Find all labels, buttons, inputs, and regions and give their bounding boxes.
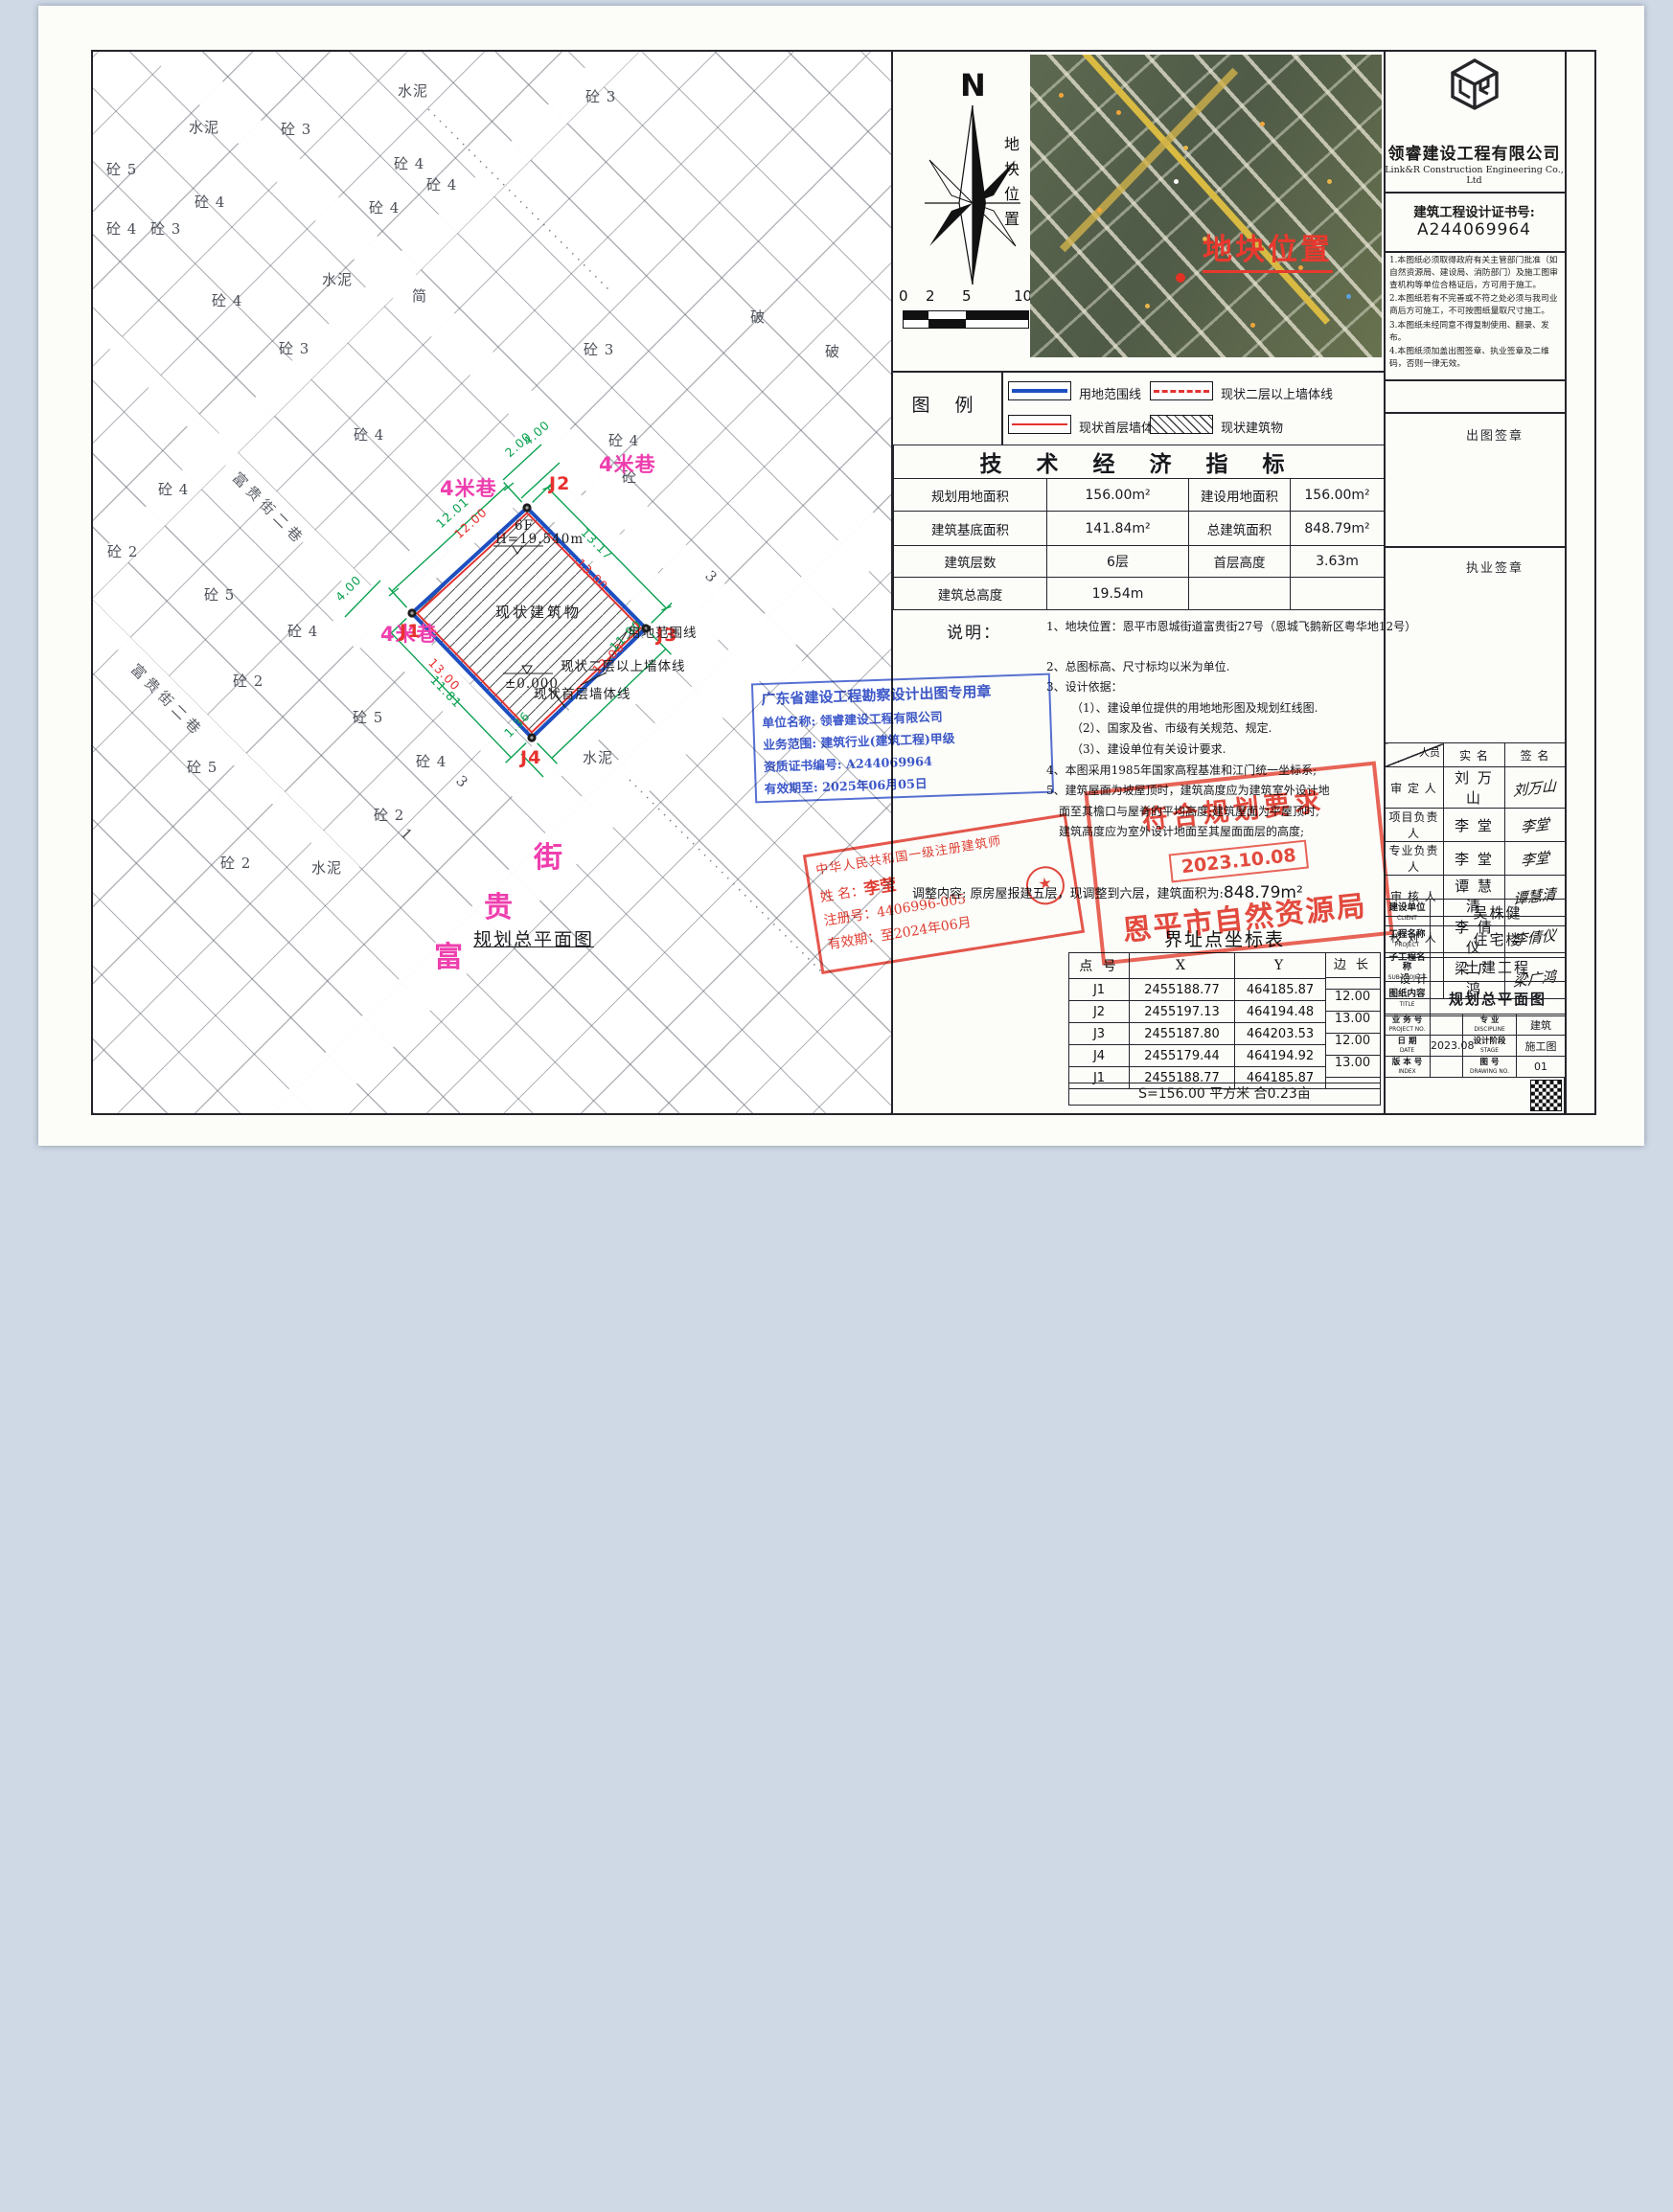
map-label: 砼 3: [584, 339, 614, 359]
map-label: J2: [549, 473, 570, 494]
divider: [1384, 412, 1565, 414]
map-label: 3: [701, 567, 721, 586]
map-label: 富贵街二巷: [228, 467, 310, 550]
personnel-signature: 李堂: [1505, 842, 1566, 876]
map-label: 水泥: [398, 80, 428, 101]
coord-cell: J2: [1069, 1001, 1130, 1023]
legend-label: 现状二层以上墙体线: [1221, 384, 1333, 402]
scale-number: 2: [926, 287, 935, 305]
divider: [1384, 192, 1565, 194]
coord-cell: 464194.48: [1235, 1001, 1326, 1023]
info-label-en: TITLE: [1387, 1000, 1427, 1007]
legend-title: 图 例: [893, 391, 1001, 417]
cert-number-value: A244069964: [1384, 220, 1565, 239]
natural-resources-bureau-stamp: 符合规划要求 2023.10.08 恩平市自然资源局: [1084, 762, 1393, 966]
tech-label: 首层高度: [1189, 546, 1291, 578]
disclaimer-line: 4.本图纸须加盖出图签章、执业签章及二维码，否则一律无效。: [1389, 346, 1560, 371]
divider: [1384, 251, 1565, 253]
personnel-name: 刘 万 山: [1444, 767, 1505, 809]
map-label: 砼 5: [106, 159, 137, 179]
coord-cell: J4: [1069, 1045, 1130, 1067]
coord-cell: 2455197.13: [1130, 1001, 1235, 1023]
map-label: 水泥: [322, 269, 353, 289]
note-line: （1）、建设单位提供的用地地形图及规划红线图.: [1046, 698, 1386, 719]
legend-swatch-existing-building: [1150, 415, 1213, 434]
note-line: 1、地块位置：恩平市恩城街道富贵街27号（恩城飞鹅新区粤华地12号）: [1046, 617, 1386, 638]
personnel-role: 项目负责人: [1385, 809, 1444, 842]
map-label: 砼 4: [369, 197, 400, 217]
tech-value: 141.84m²: [1047, 512, 1189, 546]
info-label-zh: 图纸内容: [1385, 990, 1430, 999]
map-label: 4米巷: [599, 449, 656, 478]
satellite-poi-dots: [1059, 93, 1064, 98]
note-line: （2）、国家及省、市级有关规范、规定.: [1046, 718, 1386, 740]
plot-location-callout: 地块位置: [1203, 225, 1333, 273]
stamp-field-label: 注册号：: [823, 905, 879, 929]
grid-label-en: STAGE: [1466, 1047, 1514, 1054]
map-label: 现状建筑物: [495, 602, 582, 622]
divider: [1384, 379, 1565, 381]
map-labels-layer: 水泥砼 3水泥砼 5砼 4砼 4砼 4砼 3砼 4砼 4水泥简砼 3砼 4破破砼…: [93, 52, 893, 1115]
archive-qr-code: [1530, 1080, 1562, 1111]
tech-label: 总建筑面积: [1189, 512, 1291, 546]
stamp-agency-name: 恩平市自然资源局: [1120, 881, 1368, 949]
disclaimer-line: 2.本图纸若有不完善或不符之处必须与我司业商后方可施工，不可按图纸量取尺寸施工。: [1389, 293, 1560, 318]
grid-label-zh: 图 号: [1463, 1059, 1516, 1067]
area-summary: S=156.00 平方米 合0.23亩: [1068, 1083, 1381, 1106]
sheet-title-value: 规划总平面图: [1431, 981, 1566, 1015]
coord-cell: 464203.53: [1235, 1023, 1326, 1045]
grid-label-cell: 业 务 号PROJECT NO.: [1385, 1015, 1431, 1036]
info-label-zh: 建设单位: [1385, 903, 1430, 913]
map-label: 4.00: [332, 572, 364, 604]
info-label-zh: 工程名称: [1385, 930, 1430, 940]
tech-value: 19.54m: [1047, 578, 1189, 610]
map-label: 1: [397, 825, 416, 844]
map-label: 4.00: [520, 418, 553, 448]
tech-label: [1189, 578, 1291, 610]
map-label: 水泥: [189, 117, 219, 137]
map-label: 1.36: [501, 708, 533, 740]
cert-number-label: 建筑工程设计证书号:: [1384, 201, 1565, 220]
edge-spacer: [1325, 978, 1380, 990]
info-label-zh: 子工程名称: [1385, 953, 1430, 973]
map-label: 砼 5: [204, 584, 235, 604]
map-label: 砼 4: [608, 430, 639, 450]
map-label: 砼 4: [195, 192, 225, 212]
tech-label: 建筑基底面积: [894, 512, 1047, 546]
personnel-header: 实 名: [1444, 743, 1505, 767]
coord-cell: J1: [1069, 979, 1130, 1001]
plot-location-strip: 地块位置: [998, 136, 1021, 236]
coordinate-table: 点 号 X Y J12455188.77464185.87 J22455197.…: [1068, 952, 1326, 1089]
note-line: （3）、建设单位有关设计要求.: [1046, 740, 1386, 761]
disclaimer-line: 3.本图纸未经同意不得复制使用、翻录、发布。: [1389, 320, 1560, 345]
map-label: 砼 3: [281, 119, 311, 139]
corner-label: 人员: [1419, 744, 1440, 760]
grid-label-en: DISCIPLINE: [1466, 1026, 1514, 1033]
info-label-cell: 建设单位CLIENT: [1385, 900, 1431, 926]
tech-table-title: 技 术 经 济 指 标: [894, 445, 1385, 479]
legend-swatch-land-boundary: [1008, 381, 1071, 400]
scale-number: 0: [899, 287, 908, 305]
signature: 刘万山: [1513, 775, 1556, 801]
grid-label-zh: 版 本 号: [1385, 1059, 1430, 1067]
company-name: 领睿建设工程有限公司: [1384, 140, 1565, 164]
map-label: 水泥: [311, 857, 342, 878]
grid-label-cell: 专 业DISCIPLINE: [1463, 1015, 1517, 1036]
note-line: 2、总图标高、尺寸标均以米为单位.: [1046, 657, 1386, 678]
info-label-en: CLIENT: [1387, 914, 1427, 921]
personnel-name: 李 堂: [1444, 809, 1505, 842]
info-label-cell: 工程名称PROJECT: [1385, 926, 1431, 953]
note-line: 3、设计依据：: [1046, 677, 1386, 698]
tech-value: 6层: [1047, 546, 1189, 578]
disclaimer-notes: 1.本图纸必须取得政府有关主管部门批准（如自然资源局、建设局、消防部门）及施工图…: [1389, 255, 1560, 373]
project-name: 住宅楼: [1431, 926, 1566, 953]
map-label: 砼 3: [279, 338, 309, 358]
grid-label-cell: 设计阶段STAGE: [1463, 1036, 1517, 1057]
satellite-image: 地块位置: [1030, 55, 1382, 357]
edge-length: 13.00: [1325, 1012, 1380, 1034]
map-label: 富: [434, 933, 464, 975]
map-label: 砼 4: [426, 174, 457, 194]
grid-label-en: PROJECT NO.: [1387, 1026, 1427, 1033]
plot-location-dot: [1176, 273, 1185, 283]
grid-label-cell: 日 期DATE: [1385, 1036, 1431, 1057]
coord-cell: J3: [1069, 1023, 1130, 1045]
signature: 李堂: [1521, 813, 1549, 837]
discipline-value: 建筑: [1517, 1015, 1566, 1036]
legend-swatch-first-floor-wall: [1008, 415, 1071, 434]
grid-label-en: DRAWING NO.: [1466, 1068, 1514, 1075]
map-label: 简: [412, 285, 427, 306]
north-letter: N: [960, 67, 986, 103]
disclaimer-line: 1.本图纸必须取得政府有关主管部门批准（如自然资源局、建设局、消防部门）及施工图…: [1389, 255, 1560, 291]
site-plan-panel: 水泥砼 3水泥砼 5砼 4砼 4砼 4砼 3砼 4砼 4水泥简砼 3砼 4破破砼…: [91, 50, 893, 1115]
grid-label-cell: 版 本 号INDEX: [1385, 1057, 1431, 1078]
tech-value: 156.00m²: [1047, 479, 1189, 512]
tech-label: 建设用地面积: [1189, 479, 1291, 512]
map-label: 砼 4: [158, 479, 189, 499]
grid-label-zh: 日 期: [1385, 1038, 1430, 1046]
map-label: 砼 5: [187, 757, 218, 777]
map-label: 砼 3: [585, 86, 616, 106]
tech-label: 建筑层数: [894, 546, 1047, 578]
map-label: 砼 4: [394, 153, 424, 173]
client-name: 吴株健: [1431, 900, 1566, 926]
map-label: 富贵街二巷: [126, 659, 209, 741]
info-label-cell: 子工程名称SUB-PROJECT: [1385, 953, 1431, 982]
coord-cell: 2455179.44: [1130, 1045, 1235, 1067]
map-label: 现状二层以上墙体线: [561, 655, 686, 674]
stamp-box-label: 出图签章: [1466, 425, 1524, 444]
project-info-table: 建设单位CLIENT 吴株健 工程名称PROJECT 住宅楼 子工程名称SUB-…: [1384, 899, 1566, 1016]
project-no-value: [1431, 1015, 1463, 1036]
tech-economic-table: 技 术 经 济 指 标 规划用地面积 156.00m² 建设用地面积 156.0…: [893, 445, 1385, 610]
edge-length: 13.00: [1325, 1056, 1380, 1078]
map-label: 砼 2: [233, 671, 264, 691]
stamp-approval-text: 符合规划要求: [1139, 780, 1326, 836]
signature: 李堂: [1521, 847, 1549, 871]
map-label: 破: [750, 307, 766, 327]
info-label-en: SUB-PROJECT: [1387, 973, 1427, 980]
map-label: H=19.540m: [495, 532, 584, 547]
stamp-box-label: 执业签章: [1466, 558, 1524, 576]
map-label: 砼 4: [106, 218, 137, 239]
coord-cell: 464194.92: [1235, 1045, 1326, 1067]
scale-bar: [903, 319, 1029, 329]
personnel-name: 李 堂: [1444, 842, 1505, 876]
map-label: J1: [400, 621, 421, 642]
company-logo: [1449, 57, 1501, 111]
legend-label: 现状建筑物: [1221, 418, 1283, 436]
map-label: 现状首层墙体线: [534, 683, 631, 702]
divider: [893, 371, 1384, 373]
drawing-no-value: 01: [1517, 1057, 1566, 1078]
grid-label-en: DATE: [1387, 1047, 1427, 1054]
map-label: 4米巷: [440, 473, 497, 502]
map-label: 砼 3: [150, 218, 181, 239]
map-label: 砼 2: [220, 853, 251, 873]
company-name-en: Link&R Construction Engineering Co., Ltd: [1384, 165, 1565, 186]
coord-cell: 2455187.80: [1130, 1023, 1235, 1045]
info-label-cell: 图纸内容TITLE: [1385, 981, 1431, 1015]
info-label-en: PROJECT: [1387, 941, 1427, 947]
edge-length: 12.00: [1325, 990, 1380, 1012]
map-label: 砼 4: [287, 621, 318, 641]
scanned-plan-sheet: 水泥砼 3水泥砼 5砼 4砼 4砼 4砼 3砼 4砼 4水泥简砼 3砼 4破破砼…: [0, 0, 1673, 1160]
personnel-header: 签 名: [1505, 743, 1566, 767]
edge-length: 12.00: [1325, 1034, 1380, 1056]
coord-cell: 464185.87: [1235, 979, 1326, 1001]
map-label: 贵: [484, 883, 514, 925]
map-label: J4: [520, 747, 541, 768]
map-label: 水泥: [583, 747, 613, 767]
tech-value: 156.00m²: [1291, 479, 1385, 512]
personnel-signature: 刘万山: [1505, 767, 1566, 809]
coord-cell: 2455188.77: [1130, 979, 1235, 1001]
map-label: 3: [452, 772, 471, 791]
title-block-grid: 业 务 号PROJECT NO. 专 业DISCIPLINE 建筑 日 期DAT…: [1384, 1014, 1566, 1078]
personnel-corner-cell: 人员: [1385, 743, 1444, 767]
divider: [1384, 546, 1565, 548]
map-label: 砼 4: [354, 424, 384, 445]
map-label: 砼 2: [107, 541, 138, 561]
grid-label-zh: 业 务 号: [1385, 1016, 1430, 1025]
stamp-field-label: 有效期：: [827, 929, 882, 953]
stamp-date: 2023.10.08: [1168, 839, 1309, 882]
architect-valid-date: 至2024年06月: [880, 915, 973, 945]
personnel-role: 专业负责人: [1385, 842, 1444, 876]
map-label: 砼 5: [353, 707, 383, 727]
notes-title: 说明：: [947, 619, 1001, 643]
legend-label: 用地范围线: [1079, 384, 1141, 402]
stamp-field-label: 姓 名：: [819, 883, 865, 905]
satellite-road: [1056, 55, 1330, 325]
personnel-role: 审 定 人: [1385, 767, 1444, 809]
tech-value: 848.79m²: [1291, 512, 1385, 546]
map-label: 砼 4: [212, 290, 242, 310]
map-label: 街: [534, 833, 563, 876]
legend-swatch-upper-wall: [1150, 381, 1213, 400]
tech-label: 规划用地面积: [894, 479, 1047, 512]
divider: [1001, 373, 1003, 445]
coord-header: Y: [1235, 953, 1326, 979]
index-value: [1431, 1057, 1463, 1078]
tech-label: 建筑总高度: [894, 578, 1047, 610]
architect-name: 李莹: [862, 876, 898, 900]
tech-value: [1291, 578, 1385, 610]
tech-value: 3.63m: [1291, 546, 1385, 578]
stage-value: 施工图: [1517, 1036, 1566, 1057]
grid-label-zh: 专 业: [1463, 1016, 1516, 1025]
edge-length-column: 边 长 12.00 13.00 12.00 13.00: [1325, 952, 1381, 1089]
scale-number: 5: [962, 287, 972, 305]
map-label: 砼 2: [374, 805, 404, 825]
map-label: 用地范围线: [628, 622, 698, 641]
grid-label-en: INDEX: [1387, 1068, 1427, 1075]
drawing-title: 规划总平面图: [467, 925, 601, 951]
map-label: 破: [825, 341, 840, 361]
grid-label-cell: 图 号DRAWING NO.: [1463, 1057, 1517, 1078]
coord-header: 边 长: [1325, 953, 1380, 978]
personnel-signature: 李堂: [1505, 809, 1566, 842]
sub-project-name: 土建工程: [1431, 953, 1566, 982]
provincial-design-stamp: 广东省建设工程勘察设计出图专用章 单位名称: 领睿建设工程有限公司 业务范围: …: [751, 673, 1054, 804]
map-label: 砼 4: [416, 751, 447, 771]
date-value: 2023.08: [1431, 1036, 1463, 1057]
